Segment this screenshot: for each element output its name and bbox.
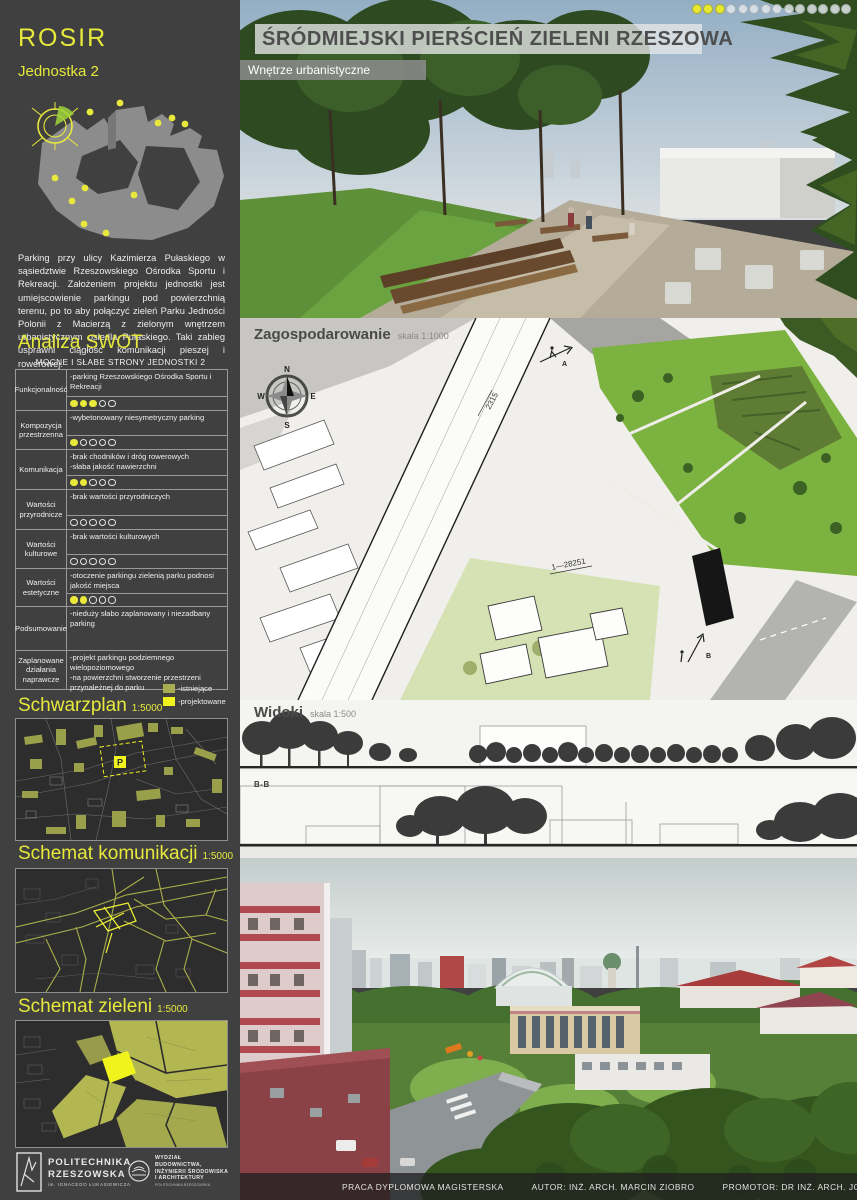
- row-text: -brak chodników i dróg rowerowych -słaba…: [67, 450, 227, 475]
- row-label: Wartości kulturowe: [16, 530, 67, 568]
- faculty-emblem-icon: [128, 1160, 150, 1182]
- faculty-name: WYDZIAŁ BUDOWNICTWA, INŻYNIERII ŚRODOWIS…: [155, 1155, 235, 1182]
- university-logo-block: POLITECHNIKA RZESZOWSKA im. IGNACEGO ŁUK…: [16, 1152, 131, 1192]
- university-name: POLITECHNIKA RZESZOWSKA: [48, 1157, 131, 1181]
- row-text: -brak wartości przyrodniczych: [67, 490, 227, 515]
- rating-dots: [67, 515, 227, 529]
- row-label: Wartości estetyczne: [16, 569, 67, 606]
- swot-table-header: MOCNE I SŁABE STRONY JEDNOSTKI 2: [15, 357, 226, 367]
- svg-text:N: N: [284, 365, 290, 374]
- row-label: Wartości przyrodnicze: [16, 490, 67, 529]
- map-legend: -istniejące -projektowane: [163, 684, 233, 710]
- author-credit: AUTOR: INŻ. ARCH. MARCIN ZIOBRO: [532, 1182, 695, 1192]
- rating-dots: [67, 396, 227, 410]
- rating-dots: [67, 593, 227, 606]
- row-label: Komunikacja: [16, 450, 67, 489]
- section-bb-drawing: [240, 772, 857, 858]
- unit-label: Jednostka 2: [18, 63, 99, 80]
- row-text: -wybetonowany niesymetryczny parking: [67, 411, 227, 435]
- schwarzplan-title: Schwarzplan1:5000: [18, 695, 162, 717]
- thesis-type: PRACA DYPLOMOWA MAGISTERSKA: [342, 1182, 504, 1192]
- row-label: Podsumowanie: [16, 607, 67, 650]
- svg-text:A: A: [562, 361, 567, 368]
- schemat-komunikacji-map: [15, 868, 228, 993]
- schwarzplan-map: P: [15, 718, 228, 841]
- poster-title-band: ŚRÓDMIEJSKI PIERŚCIEŃ ZIELENI RZESZOWA: [255, 24, 702, 54]
- schemat-zieleni-title: Schemat zieleni1:5000: [18, 996, 188, 1018]
- row-text: -parking Rzeszowskiego Ośrodka Sportu i …: [67, 370, 227, 396]
- table-row: Komunikacja -brak chodników i dróg rower…: [16, 450, 227, 490]
- credits-bar: PRACA DYPLOMOWA MAGISTERSKA AUTOR: INŻ. …: [240, 1173, 857, 1200]
- svg-text:W: W: [257, 392, 265, 401]
- rating-dots: [67, 435, 227, 449]
- svg-text:S: S: [284, 421, 290, 430]
- section-bb-label: B-B: [254, 780, 270, 789]
- swot-table: Funkcjonalność -parking Rzeszowskiego Oś…: [15, 369, 228, 690]
- faculty-subname: POLITECHNIKA RZESZOWSKA: [155, 1183, 235, 1187]
- row-label: Zaplanowane działania naprawcze: [16, 651, 67, 689]
- poster-subtitle: Wnętrze urbanistyczne: [248, 63, 370, 77]
- promoter-credit: PROMOTOR: DR INŻ. ARCH. JOANNA DUDEK: [723, 1182, 857, 1192]
- poster-board: ROSIR Jednostka 2 Parking przy ulicy Kaz…: [0, 0, 857, 1200]
- swot-title: Analiza SWOT: [18, 332, 143, 354]
- row-text: -nieduży słabo zaplanowany i niezadbany …: [67, 607, 227, 650]
- existing-swatch: [163, 684, 175, 693]
- row-text: -otoczenie parkingu zielenią parku podno…: [67, 569, 227, 593]
- row-label: Funkcjonalność: [16, 370, 67, 410]
- legend-planned: -projektowane: [163, 697, 233, 706]
- rating-dots: [67, 554, 227, 568]
- table-row: Wartości kulturowe -brak wartości kultur…: [16, 530, 227, 569]
- rating-dots: [67, 475, 227, 489]
- table-row: Kompozycja przestrzenna -wybetonowany ni…: [16, 411, 227, 450]
- views-title: Widokiskala 1:500: [254, 704, 356, 721]
- schemat-zieleni-map: [15, 1020, 228, 1148]
- table-row: Funkcjonalność -parking Rzeszowskiego Oś…: [16, 370, 227, 411]
- row-text: -brak wartości kulturowych: [67, 530, 227, 554]
- faculty-logo-block: WYDZIAŁ BUDOWNICTWA, INŻYNIERII ŚRODOWIS…: [128, 1155, 235, 1187]
- svg-text:B: B: [706, 653, 711, 660]
- plan-title: Zagospodarowanieskala 1:1000: [254, 326, 449, 343]
- table-row: Wartości estetyczne -otoczenie parkingu …: [16, 569, 227, 607]
- planned-swatch: [163, 697, 175, 706]
- unit-progress-dots: [692, 4, 852, 14]
- section-aa-label: A-A: [254, 728, 270, 737]
- legend-existing: -istniejące: [163, 684, 233, 693]
- politechnika-emblem-icon: [16, 1152, 42, 1192]
- svg-text:E: E: [310, 392, 316, 401]
- row-label: Kompozycja przestrzenna: [16, 411, 67, 449]
- unit-ring-map: [12, 88, 234, 246]
- content-column: ŚRÓDMIEJSKI PIERŚCIEŃ ZIELENI RZESZOWA W…: [240, 0, 857, 1200]
- rosir-logo: ROSIR: [18, 24, 107, 53]
- p-marker: P: [117, 758, 123, 768]
- masterplan-drawing: N E S W 2315 1—28251 A: [240, 318, 857, 700]
- table-row: Wartości przyrodnicze -brak wartości prz…: [16, 490, 227, 530]
- university-subname: im. IGNACEGO ŁUKASIEWICZA: [48, 1182, 131, 1187]
- poster-subtitle-band: Wnętrze urbanistyczne: [240, 60, 426, 80]
- poster-title: ŚRÓDMIEJSKI PIERŚCIEŃ ZIELENI RZESZOWA: [262, 28, 733, 51]
- aerial-photo: [240, 858, 857, 1200]
- table-row: Podsumowanie -nieduży słabo zaplanowany …: [16, 607, 227, 651]
- schemat-komunikacji-title: Schemat komunikacji1:5000: [18, 843, 233, 865]
